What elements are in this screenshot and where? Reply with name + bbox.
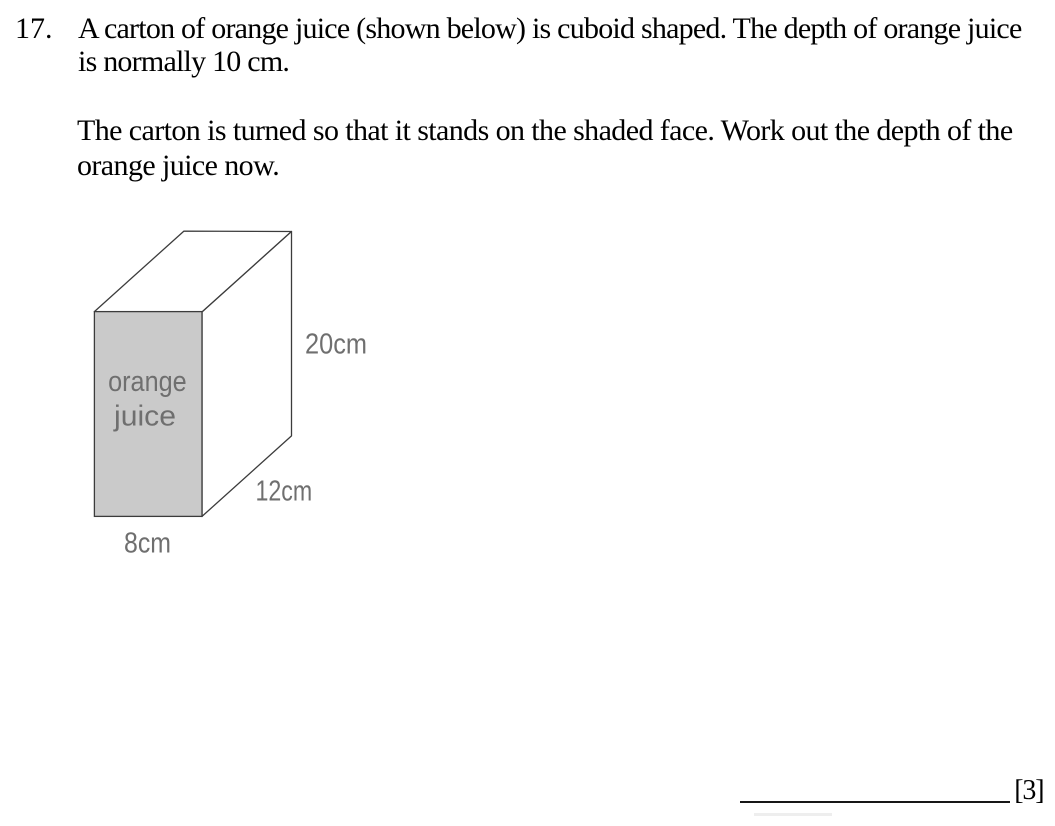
svg-text:orange: orange <box>108 366 187 398</box>
svg-text:20cm: 20cm <box>305 329 367 361</box>
svg-text:12cm: 12cm <box>256 476 313 508</box>
svg-text:juice: juice <box>113 401 176 433</box>
svg-text:8cm: 8cm <box>124 528 171 560</box>
